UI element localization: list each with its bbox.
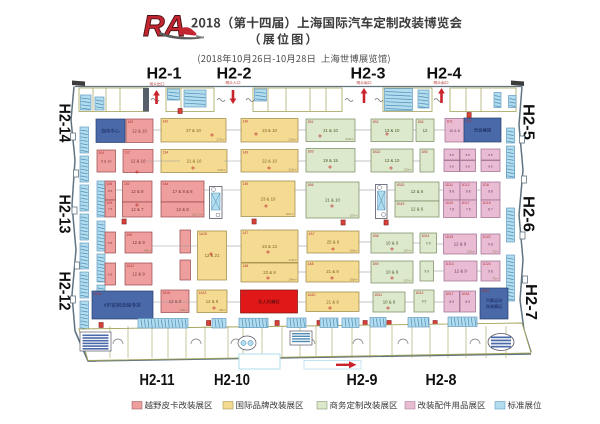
svg-text:8 8: 8 8 (466, 165, 471, 169)
svg-text:H2-6: H2-6 (520, 196, 537, 232)
svg-text:1B19: 1B19 (397, 202, 405, 206)
svg-text:12: 12 (423, 128, 428, 133)
svg-text:H2-10: H2-10 (214, 372, 250, 389)
svg-text:13 & 10: 13 & 10 (385, 128, 400, 133)
svg-text:179m²: 179m² (288, 258, 296, 262)
svg-text:8 8: 8 8 (450, 165, 455, 169)
svg-text:1D11: 1D11 (445, 183, 453, 187)
svg-text:6 8: 6 8 (108, 241, 113, 245)
svg-text:157m²: 157m² (403, 249, 411, 253)
svg-text:1B13: 1B13 (416, 291, 424, 295)
svg-text:112: 112 (125, 151, 131, 155)
svg-text:H2-2: H2-2 (217, 66, 252, 83)
svg-text:10 & 9: 10 & 9 (386, 241, 399, 246)
svg-text:27 & 10: 27 & 10 (186, 128, 201, 133)
svg-text:12 & 10: 12 & 10 (385, 158, 400, 163)
svg-text:25 & 9: 25 & 9 (327, 240, 340, 245)
svg-text:190m²: 190m² (349, 278, 357, 282)
svg-text:H2-13: H2-13 (56, 195, 73, 234)
svg-text:H2-3: H2-3 (351, 66, 386, 83)
svg-text:6 8: 6 8 (108, 273, 113, 277)
svg-text:17 & 8 & 8: 17 & 8 & 8 (172, 189, 193, 194)
svg-text:7 5: 7 5 (108, 207, 113, 211)
svg-text:10 & 8: 10 & 8 (449, 129, 459, 133)
svg-text:8 8: 8 8 (450, 153, 455, 157)
svg-text:10 & 9: 10 & 9 (386, 270, 399, 275)
svg-text:120m²: 120m² (403, 168, 411, 172)
svg-text:1B8: 1B8 (373, 234, 379, 238)
svg-text:134: 134 (163, 151, 169, 155)
svg-text:106m²: 106m² (467, 250, 475, 254)
svg-text:1A7: 1A7 (309, 232, 315, 236)
svg-text:1618: 1618 (94, 292, 102, 296)
svg-text:1A13: 1A13 (199, 291, 207, 295)
svg-text:98m²: 98m² (144, 249, 151, 253)
svg-text:1616: 1616 (163, 291, 171, 295)
svg-text:9 9: 9 9 (422, 300, 427, 304)
svg-text:H2-14: H2-14 (56, 104, 73, 143)
svg-text:1B11: 1B11 (375, 293, 383, 297)
svg-text:1D14: 1D14 (446, 262, 454, 266)
svg-text:1D19: 1D19 (445, 235, 453, 239)
svg-text:184m²: 184m² (288, 278, 296, 282)
svg-text:230m²: 230m² (288, 138, 296, 142)
svg-text:1D24: 1D24 (483, 262, 491, 266)
svg-text:1B1: 1B1 (308, 120, 314, 124)
svg-text:109m²: 109m² (179, 308, 187, 312)
svg-text:12 & 9: 12 & 9 (206, 299, 219, 304)
svg-text:9 9: 9 9 (426, 242, 431, 246)
svg-text:8 5: 8 5 (108, 189, 113, 193)
svg-text:8 8: 8 8 (466, 190, 471, 194)
svg-text:98m²: 98m² (219, 308, 226, 312)
svg-text:215m²: 215m² (217, 168, 225, 172)
svg-text:122.7m²: 122.7m² (192, 213, 203, 217)
svg-text:143: 143 (243, 151, 249, 155)
svg-text:23 & 13: 23 & 13 (262, 244, 277, 249)
svg-text:12 & 9: 12 & 9 (132, 272, 145, 277)
svg-text:142: 142 (163, 120, 169, 124)
svg-text:10 & 9: 10 & 9 (383, 300, 396, 305)
svg-text:161: 161 (242, 291, 248, 295)
svg-text:7 8: 7 8 (466, 207, 471, 211)
svg-text:9 8: 9 8 (488, 270, 493, 274)
svg-text:23 & 10: 23 & 10 (262, 128, 277, 133)
svg-text:1B17: 1B17 (446, 292, 454, 296)
svg-text:12 & 6: 12 & 6 (411, 207, 424, 212)
svg-text:8 8: 8 8 (488, 165, 493, 169)
svg-text:H2-8: H2-8 (426, 372, 457, 389)
svg-text:214m²: 214m² (345, 137, 353, 141)
svg-text:1D10: 1D10 (445, 201, 453, 205)
svg-text:12 & 9: 12 & 9 (169, 299, 182, 304)
svg-text:169: 169 (127, 233, 133, 237)
svg-text:7 8: 7 8 (450, 207, 455, 211)
svg-text:8 8: 8 8 (466, 153, 471, 157)
svg-text:14a: 14a (163, 182, 169, 186)
svg-text:1A8: 1A8 (308, 262, 314, 266)
svg-text:12 & 10: 12 & 10 (131, 159, 146, 164)
svg-text:1D2: 1D2 (466, 119, 472, 123)
svg-text:1D22: 1D22 (483, 235, 491, 239)
svg-text:H2-11: H2-11 (140, 372, 175, 389)
svg-text:9 9: 9 9 (425, 270, 430, 274)
svg-text:12 & 9: 12 & 9 (132, 240, 145, 245)
svg-text:104: 104 (99, 151, 105, 155)
svg-text:H2-9: H2-9 (347, 372, 378, 389)
svg-text:1B20: 1B20 (397, 183, 405, 187)
svg-text:140: 140 (243, 120, 249, 124)
svg-text:21 & 10: 21 & 10 (187, 159, 202, 164)
svg-text:8 9: 8 9 (466, 300, 471, 304)
svg-text:8 8: 8 8 (450, 190, 455, 194)
svg-text:145: 145 (243, 182, 249, 186)
svg-text:H2-7: H2-7 (522, 284, 539, 320)
svg-text:21 & 10: 21 & 10 (323, 128, 338, 133)
svg-text:1612: 1612 (127, 264, 135, 268)
svg-text:H2-5: H2-5 (520, 104, 537, 140)
svg-text:12 & 10: 12 & 10 (132, 128, 147, 133)
svg-text:1D17: 1D17 (462, 201, 470, 205)
svg-text:1D15: 1D15 (483, 201, 491, 205)
svg-text:8 9: 8 9 (450, 300, 455, 304)
svg-text:H2-4: H2-4 (427, 66, 462, 83)
svg-text:190m²: 190m² (349, 249, 357, 253)
svg-text:148: 148 (243, 264, 249, 268)
svg-text:109: 109 (107, 201, 113, 205)
svg-text:73m²: 73m² (492, 277, 499, 281)
svg-text:152: 152 (124, 182, 130, 186)
svg-text:1D1: 1D1 (447, 120, 453, 124)
svg-text:1B4: 1B4 (418, 120, 424, 124)
svg-text:H2-12: H2-12 (56, 272, 73, 311)
svg-text:8 8: 8 8 (488, 153, 493, 157)
svg-text:12 & 9: 12 & 9 (454, 242, 467, 247)
svg-text:127m²: 127m² (403, 279, 411, 283)
svg-text:12 & 7: 12 & 7 (131, 207, 144, 212)
svg-text:1D8: 1D8 (483, 183, 489, 187)
svg-text:1B18: 1B18 (462, 292, 470, 296)
svg-text:12 & 6: 12 & 6 (411, 189, 424, 194)
svg-text:1B14: 1B14 (422, 234, 430, 238)
svg-text:H2-1: H2-1 (147, 66, 182, 83)
svg-text:22 & 10: 22 & 10 (262, 158, 277, 163)
svg-text:270m²: 270m² (216, 138, 224, 142)
svg-text:157m²: 157m² (349, 214, 357, 218)
svg-text:21 & 9: 21 & 9 (326, 269, 339, 274)
svg-text:1B6: 1B6 (308, 183, 314, 187)
svg-text:8 8: 8 8 (488, 190, 493, 194)
svg-text:12 & 8: 12 & 8 (176, 207, 189, 212)
svg-text:21 & 10: 21 & 10 (325, 198, 340, 203)
svg-text:1A15: 1A15 (199, 232, 207, 236)
svg-text:1B2: 1B2 (373, 120, 379, 124)
svg-text:103: 103 (128, 120, 134, 124)
svg-text:1B23: 1B23 (482, 289, 490, 293)
svg-text:187m²: 187m² (285, 212, 293, 216)
svg-text:23 & 8: 23 & 8 (263, 270, 276, 275)
svg-text:9 & 10: 9 & 10 (101, 160, 111, 164)
svg-text:1B9: 1B9 (373, 262, 379, 266)
svg-text:1B22: 1B22 (373, 150, 381, 154)
svg-text:9 8: 9 8 (488, 243, 493, 247)
svg-text:215m²: 215m² (288, 168, 296, 172)
svg-text:1A10: 1A10 (308, 293, 316, 297)
svg-text:23 & 10: 23 & 10 (261, 196, 276, 201)
svg-text:21 & 9: 21 & 9 (326, 299, 339, 304)
svg-text:12 & 9: 12 & 9 (454, 269, 467, 274)
svg-text:1D12: 1D12 (462, 183, 470, 187)
svg-text:R: R (143, 10, 165, 43)
svg-text:12 & 8: 12 & 8 (131, 189, 144, 194)
svg-text:71m²: 71m² (492, 250, 499, 254)
svg-text:147: 147 (243, 231, 249, 235)
svg-text:19 & 15: 19 & 15 (323, 158, 338, 163)
svg-text:8 7: 8 7 (488, 207, 493, 211)
svg-text:108: 108 (107, 182, 113, 186)
svg-text:1B5: 1B5 (422, 150, 428, 154)
svg-text:1B3: 1B3 (308, 150, 314, 154)
